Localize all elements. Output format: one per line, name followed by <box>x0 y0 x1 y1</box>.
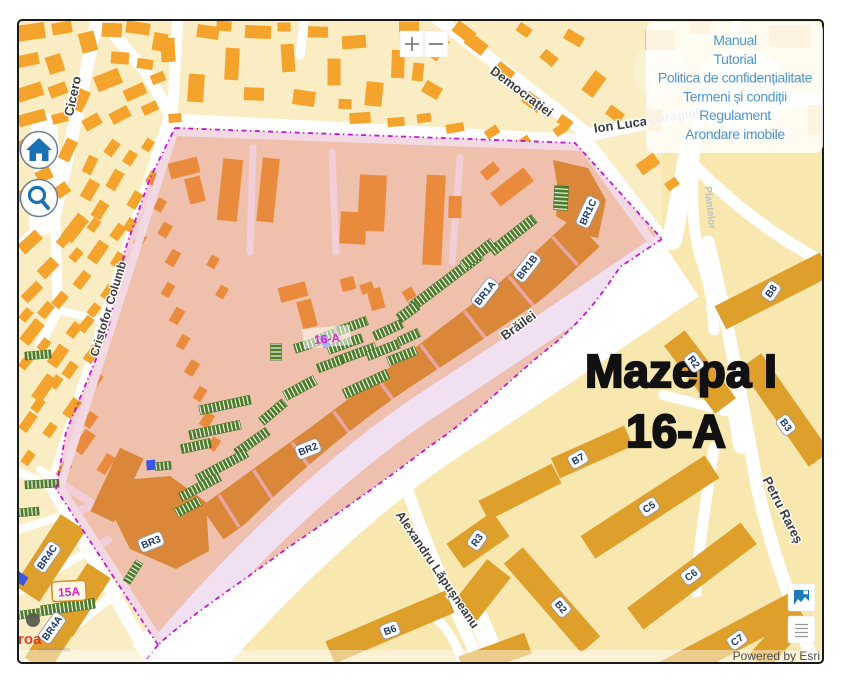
svg-text:Termeni și condiții: Termeni și condiții <box>683 88 787 104</box>
svg-text:Tutorial: Tutorial <box>714 51 757 67</box>
svg-text:Mazepa I: Mazepa I <box>585 345 777 397</box>
svg-text:roa: roa <box>18 631 42 648</box>
svg-text:15A: 15A <box>58 584 81 599</box>
svg-text:16-A: 16-A <box>314 331 341 347</box>
svg-text:Arondare imobile: Arondare imobile <box>685 126 785 142</box>
svg-text:16-A: 16-A <box>626 405 726 457</box>
svg-text:Politica de confidențialitate: Politica de confidențialitate <box>658 70 813 86</box>
svg-text:Regulament: Regulament <box>699 107 771 123</box>
svg-text:Manual: Manual <box>713 32 757 48</box>
svg-text:Powered by Esri: Powered by Esri <box>733 649 820 663</box>
